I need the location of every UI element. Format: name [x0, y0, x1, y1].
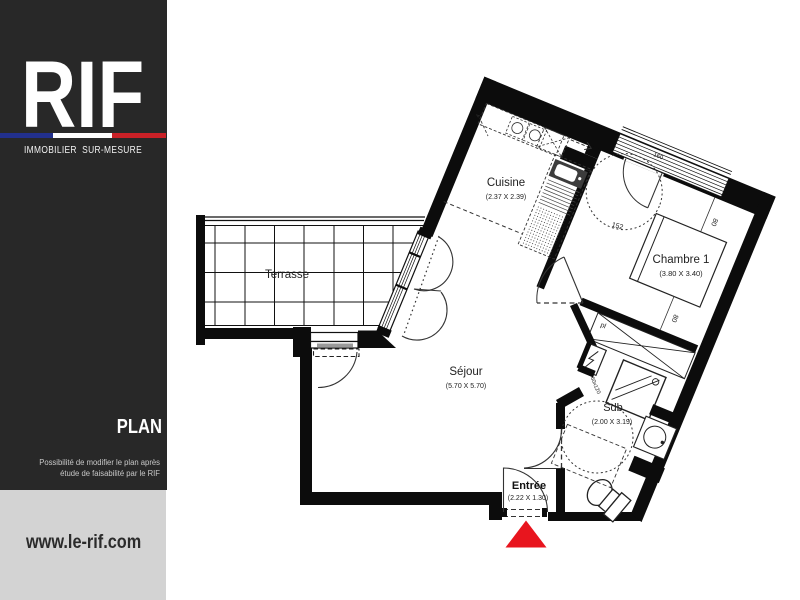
svg-text:152: 152	[611, 222, 624, 232]
svg-text:Cuisine: Cuisine	[487, 177, 525, 189]
svg-text:80: 80	[669, 313, 678, 323]
svg-text:Séjour: Séjour	[449, 366, 482, 378]
svg-text:(5.70 X 5.70): (5.70 X 5.70)	[446, 383, 486, 390]
svg-text:Chambre 1: Chambre 1	[653, 254, 710, 266]
svg-text:(2.22 X 1.30): (2.22 X 1.30)	[508, 495, 548, 502]
svg-text:Terrasse: Terrasse	[265, 269, 309, 281]
svg-text:(2.37 X 2.39): (2.37 X 2.39)	[486, 194, 526, 201]
svg-text:Entrée: Entrée	[512, 480, 546, 492]
svg-text:Sdb: Sdb	[603, 402, 623, 414]
svg-text:(2.00 X 3.19): (2.00 X 3.19)	[592, 419, 632, 426]
svg-text:(3.80 X 3.40): (3.80 X 3.40)	[659, 269, 703, 278]
svg-text:80: 80	[709, 217, 718, 227]
svg-text:60x120: 60x120	[589, 376, 602, 395]
